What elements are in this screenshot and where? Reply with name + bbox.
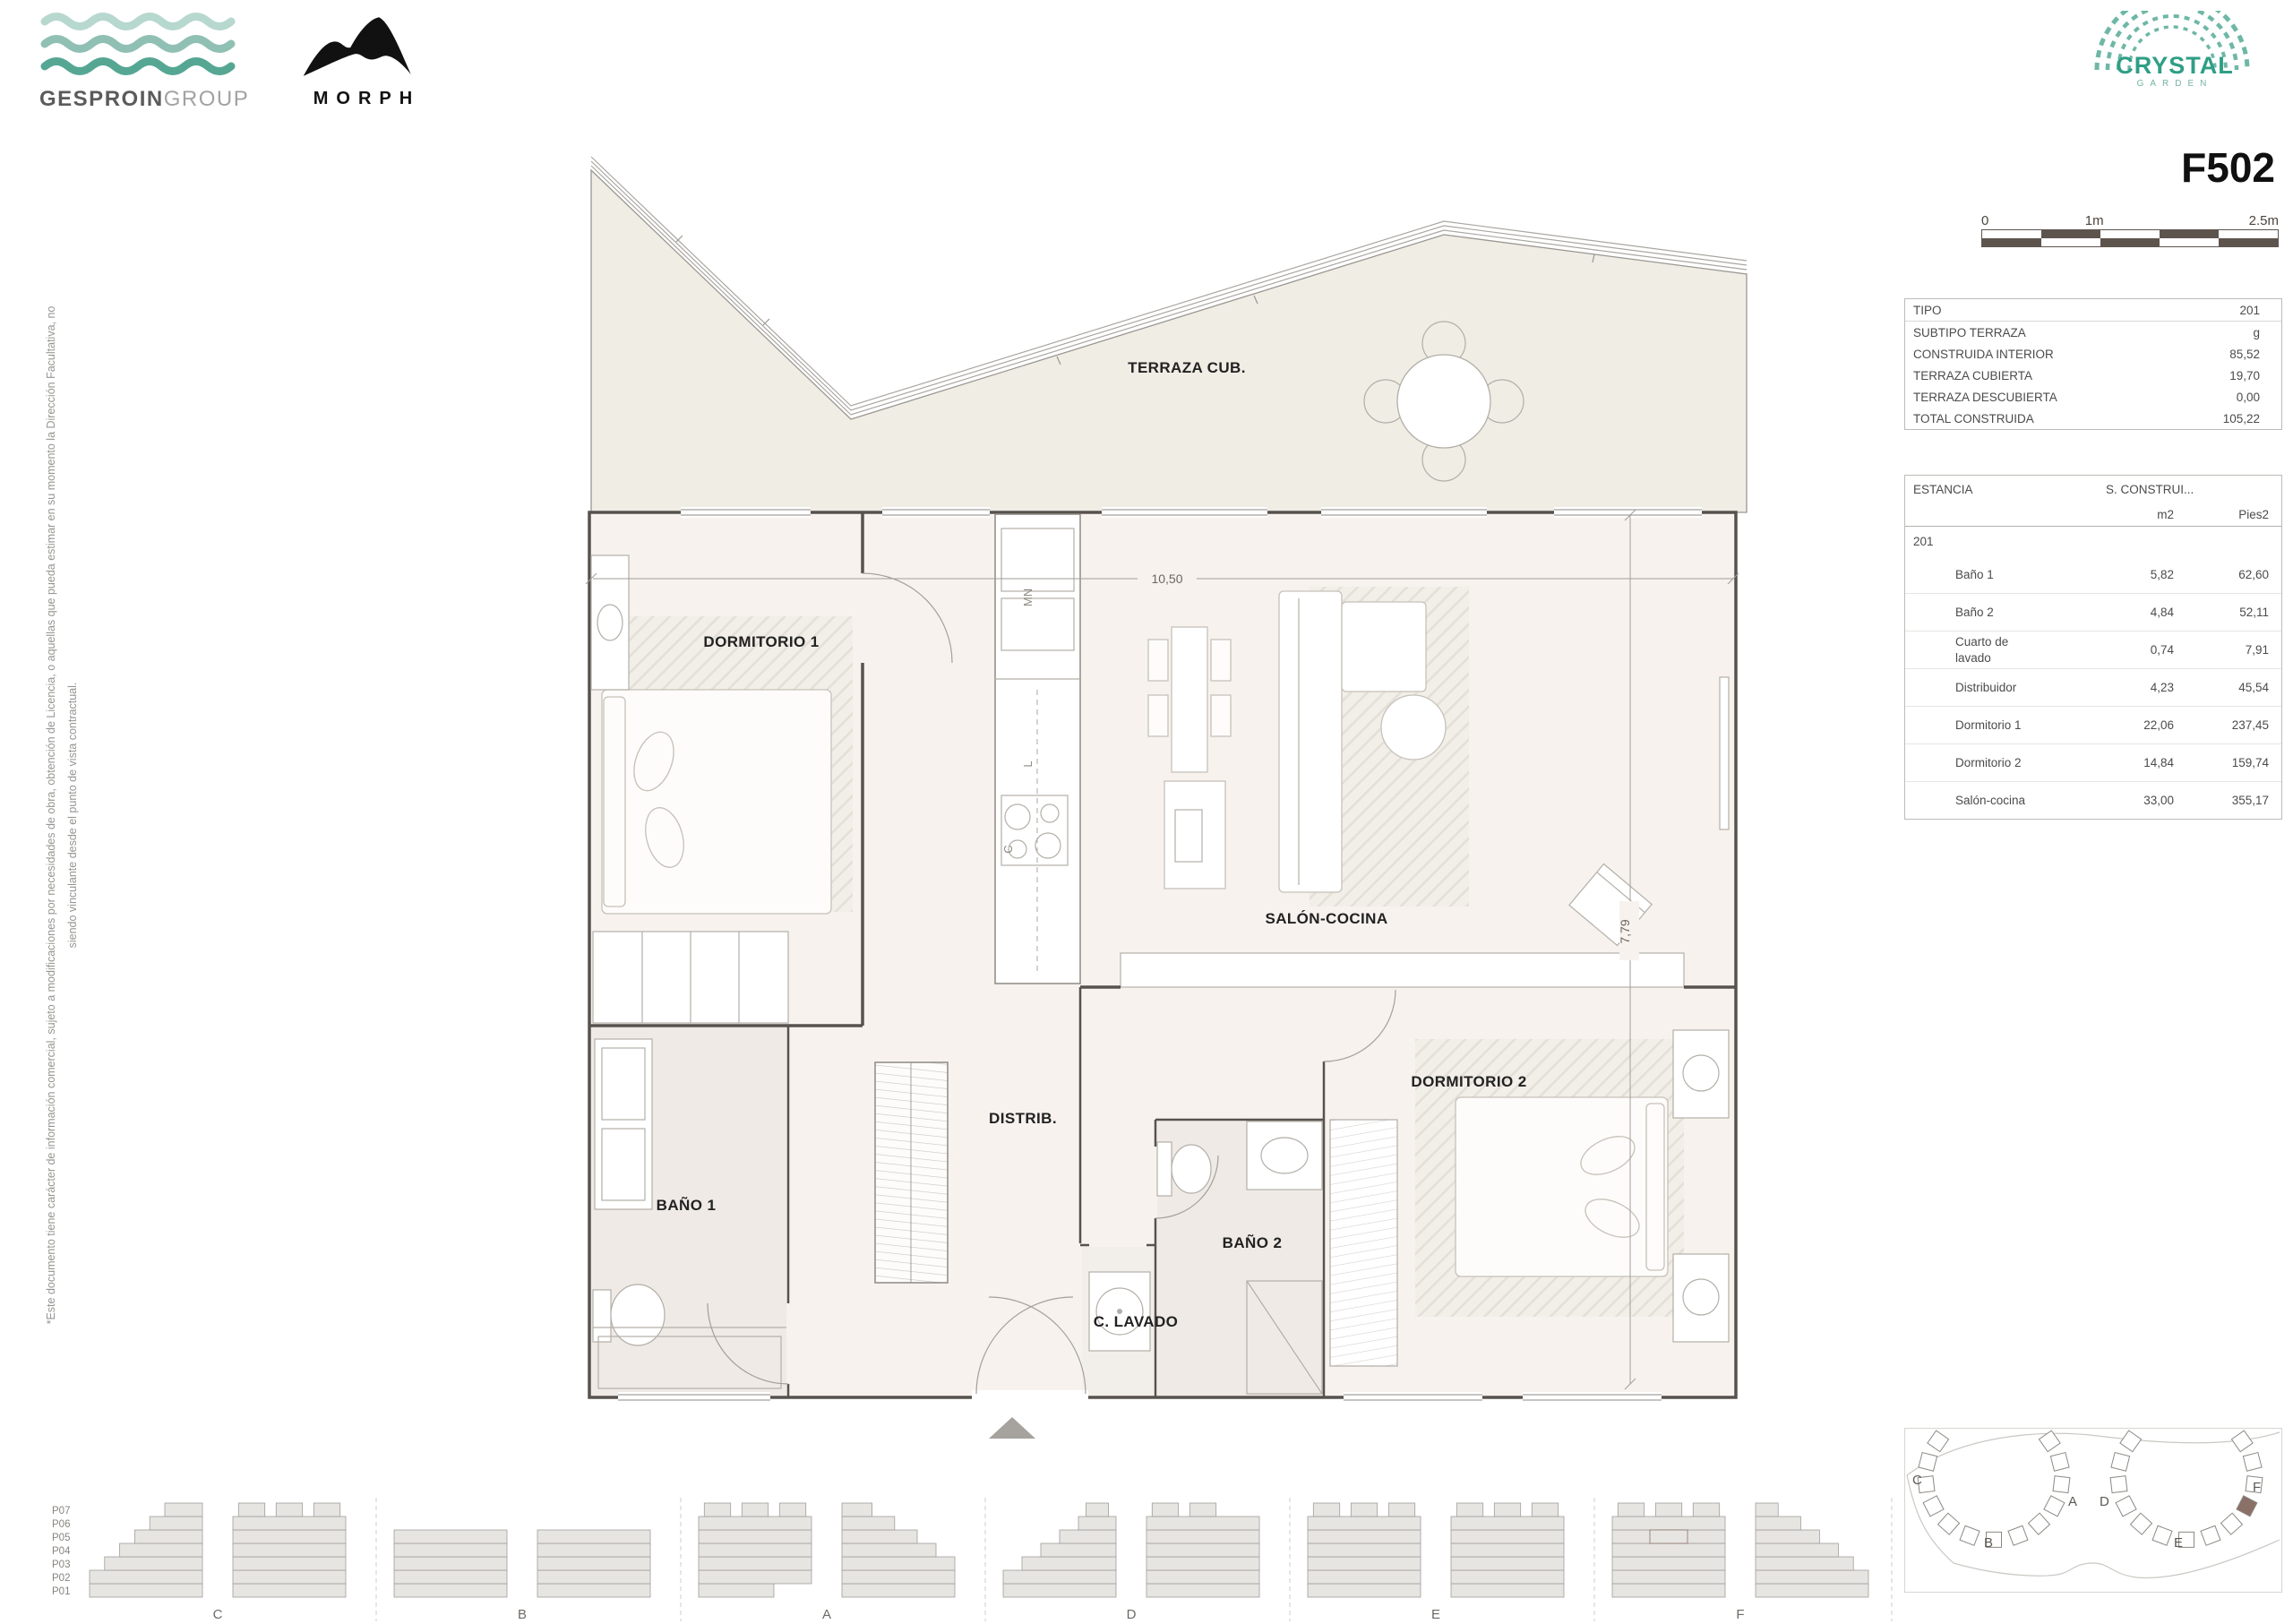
scale-bar: 0 1m 2.5m <box>1981 213 2279 249</box>
unit-cell <box>1756 1543 1838 1557</box>
unit-cell <box>842 1503 872 1517</box>
highlighted-unit-cell <box>1650 1530 1688 1543</box>
unit-code: F502 <box>2006 143 2275 192</box>
label-bano-2: BAÑO 2 <box>1223 1233 1283 1251</box>
site-unit <box>1960 1525 1980 1545</box>
unit-cell <box>1308 1543 1421 1557</box>
unit-cell <box>537 1584 650 1597</box>
dimension-width: 10,50 <box>1151 571 1182 586</box>
site-unit <box>2231 1431 2253 1452</box>
floor-plan: MN L C <box>573 150 1756 1458</box>
unit-cell <box>120 1543 202 1557</box>
unit-cell <box>842 1570 955 1584</box>
unit-cell <box>394 1570 507 1584</box>
unit-cell <box>1308 1530 1421 1543</box>
site-unit <box>2243 1453 2262 1472</box>
gesproin-waves-icon <box>39 11 247 77</box>
label-salon-cocina: SALÓN-COCINA <box>1265 910 1387 927</box>
kitchen-counter: MN L C <box>995 514 1080 984</box>
site-unit <box>2152 1525 2172 1545</box>
unit-cell <box>233 1570 346 1584</box>
unit-cell <box>233 1530 346 1543</box>
unit-cell <box>1022 1557 1116 1570</box>
unit-cell <box>1612 1517 1725 1530</box>
site-unit <box>2201 1525 2220 1545</box>
scale-tick-2-5m: 2.5m <box>2249 213 2279 228</box>
unit-cell <box>699 1543 812 1557</box>
unit-cell <box>779 1503 805 1517</box>
dorm1-bed <box>602 690 831 914</box>
unit-cell <box>1146 1570 1259 1584</box>
unit-cell <box>1388 1503 1414 1517</box>
morph-wordmark: MORPH <box>288 89 445 109</box>
unit-cell <box>842 1530 917 1543</box>
coffee-table <box>1381 695 1446 760</box>
floor-label: P01 <box>52 1586 70 1597</box>
floor-label: P06 <box>52 1519 70 1530</box>
unit-cell <box>699 1530 812 1543</box>
site-block-letter: A <box>2068 1494 2077 1509</box>
crystal-wordmark: CRYSTAL <box>2089 52 2261 80</box>
table-row: TERRAZA DESCUBIERTA0,00 <box>1905 386 2281 408</box>
site-unit <box>2131 1513 2152 1534</box>
label-dormitorio-2: DORMITORIO 2 <box>1411 1073 1526 1090</box>
appliance-label-l: L <box>1021 760 1035 767</box>
block-letter: E <box>1431 1607 1440 1622</box>
unit-cell <box>1308 1584 1421 1597</box>
table-row: CONSTRUIDA INTERIOR85,52 <box>1905 343 2281 365</box>
unit-cell <box>1078 1517 1116 1530</box>
table-row: Cuarto de lavado0,747,91 <box>1905 631 2281 668</box>
unit-cell <box>1655 1503 1681 1517</box>
unit-cell <box>1756 1584 1868 1597</box>
unit-cell <box>537 1557 650 1570</box>
label-distribuidor: DISTRIB. <box>989 1110 1057 1127</box>
unit-cell <box>1456 1503 1482 1517</box>
building-elevations: P07P06P05P04P03P02P01CBADEF <box>36 1494 1917 1624</box>
unit-cell <box>1313 1503 1339 1517</box>
rooms-table: ESTANCIA S. CONSTRUI... m2 Pies2 201 Bañ… <box>1904 475 2282 820</box>
unit-cell <box>90 1584 202 1597</box>
unit-cell <box>1693 1503 1719 1517</box>
block-letter: D <box>1127 1607 1137 1622</box>
unit-cell <box>1612 1584 1725 1597</box>
disclaimer-text: *Este documento tiene carácter de inform… <box>41 175 84 1456</box>
block-letter: B <box>518 1607 527 1622</box>
unit-cell <box>394 1530 507 1543</box>
table-row: Distribuidor4,2345,54 <box>1905 668 2281 706</box>
scale-tick-0: 0 <box>1981 213 1988 228</box>
page: { "header": { "gesproin_bold": "GESPROIN… <box>0 0 2293 1621</box>
block-letter: C <box>213 1607 223 1622</box>
unit-cell <box>1532 1503 1558 1517</box>
unit-cell <box>842 1584 955 1597</box>
unit-cell <box>842 1543 936 1557</box>
table-row: SUBTIPO TERRAZAg <box>1905 322 2281 343</box>
site-unit <box>1928 1431 1949 1452</box>
sideboard <box>1121 953 1684 987</box>
site-unit <box>2111 1453 2130 1472</box>
label-c-lavado: C. LAVADO <box>1094 1313 1179 1330</box>
unit-cell <box>1308 1557 1421 1570</box>
site-unit <box>2050 1453 2069 1472</box>
unit-cell <box>150 1517 202 1530</box>
site-unit <box>1938 1513 1960 1534</box>
crystal-garden-logo: CRYSTAL GARDEN <box>2089 11 2261 98</box>
site-unit <box>1923 1496 1944 1517</box>
table-row: Dormitorio 122,06237,45 <box>1905 706 2281 743</box>
table-row: Baño 15,8262,60 <box>1905 556 2281 593</box>
stair-core <box>875 1062 948 1283</box>
unit-cell <box>1146 1543 1259 1557</box>
terrace <box>591 157 1747 512</box>
site-block-letter: C <box>1912 1473 1922 1488</box>
site-unit <box>2120 1431 2142 1452</box>
site-unit <box>2028 1513 2049 1534</box>
unit-cell <box>1451 1570 1564 1584</box>
washer <box>1089 1272 1150 1351</box>
table-row: Baño 24,8452,11 <box>1905 593 2281 631</box>
unit-cell <box>1756 1530 1819 1543</box>
rooms-table-group: 201 <box>1905 527 2281 556</box>
floor-label: P04 <box>52 1546 71 1557</box>
wall-column <box>591 555 629 690</box>
unit-cell <box>1756 1570 1868 1584</box>
unit-cell <box>537 1530 650 1543</box>
floor-label: P03 <box>52 1560 70 1570</box>
unit-cell <box>742 1503 768 1517</box>
rooms-table-header: ESTANCIA S. CONSTRUI... <box>1905 476 2281 503</box>
site-unit <box>2053 1476 2070 1493</box>
table-row: TERRAZA CUBIERTA19,70 <box>1905 365 2281 386</box>
unit-cell <box>1451 1557 1564 1570</box>
appliance-label-mn: MN <box>1021 589 1035 606</box>
site-block-letter: F <box>2253 1480 2261 1495</box>
unit-cell <box>1146 1584 1259 1597</box>
unit-cell <box>1756 1503 1778 1517</box>
unit-cell <box>233 1517 346 1530</box>
unit-cell <box>1060 1530 1116 1543</box>
floor-label: P02 <box>52 1573 70 1584</box>
site-highlighted-unit <box>2237 1496 2257 1517</box>
table-row: Dormitorio 214,84159,74 <box>1905 743 2281 781</box>
block-letter: F <box>1736 1607 1744 1622</box>
unit-cell <box>1189 1503 1215 1517</box>
site-block-letter: D <box>2100 1494 2109 1509</box>
unit-cell <box>699 1584 774 1597</box>
unit-cell <box>134 1530 202 1543</box>
block-letter: A <box>822 1607 831 1622</box>
dimension-height: 7,79 <box>1618 919 1632 943</box>
unit-cell <box>1451 1584 1564 1597</box>
table-row: Salón-cocina33,00355,17 <box>1905 781 2281 819</box>
unit-cell <box>1612 1543 1725 1557</box>
unit-cell <box>537 1543 650 1557</box>
gesproin-logo: GESPROINGROUP <box>39 11 263 112</box>
unit-cell <box>313 1503 339 1517</box>
dorm2-wardrobe <box>1330 1120 1397 1366</box>
unit-cell <box>842 1517 895 1530</box>
unit-cell <box>90 1570 202 1584</box>
unit-cell <box>1756 1557 1853 1570</box>
rooms-table-units: m2 Pies2 <box>1905 503 2281 527</box>
unit-cell <box>233 1557 346 1570</box>
floor-label: P05 <box>52 1533 70 1543</box>
unit-cell <box>1612 1570 1725 1584</box>
unit-cell <box>1152 1503 1178 1517</box>
unit-cell <box>699 1557 812 1570</box>
unit-cell <box>165 1503 202 1517</box>
table-row: TIPO201 <box>1905 299 2281 322</box>
dorm2-bed <box>1456 1097 1668 1276</box>
summary-table: TIPO201 SUBTIPO TERRAZAg CONSTRUIDA INTE… <box>1904 298 2282 430</box>
label-dormitorio-1: DORMITORIO 1 <box>703 633 819 650</box>
site-unit <box>2044 1496 2065 1517</box>
label-terraza: TERRAZA CUB. <box>1128 359 1246 376</box>
unit-cell <box>1003 1570 1116 1584</box>
unit-cell <box>1308 1517 1421 1530</box>
entrance-arrow-icon <box>989 1417 1035 1439</box>
site-block-letter: E <box>2174 1535 2183 1551</box>
unit-cell <box>238 1503 264 1517</box>
unit-cell <box>1451 1543 1564 1557</box>
gesproin-wordmark: GESPROINGROUP <box>39 87 263 112</box>
kitchen-island <box>1164 781 1225 889</box>
unit-cell <box>1756 1517 1800 1530</box>
unit-cell <box>1494 1503 1520 1517</box>
site-unit <box>2008 1525 2028 1545</box>
morph-logo: MORPH <box>288 13 445 109</box>
unit-cell <box>233 1584 346 1597</box>
unit-cell <box>1451 1530 1564 1543</box>
unit-cell <box>276 1503 302 1517</box>
morph-mountain-icon <box>300 13 434 82</box>
unit-cell <box>394 1584 507 1597</box>
unit-cell <box>1146 1557 1259 1570</box>
unit-cell <box>394 1543 507 1557</box>
label-bano-1: BAÑO 1 <box>657 1196 717 1214</box>
unit-cell <box>1451 1517 1564 1530</box>
table-row: TOTAL CONSTRUIDA105,22 <box>1905 408 2281 429</box>
unit-cell <box>1146 1517 1259 1530</box>
unit-cell <box>699 1570 812 1584</box>
unit-cell <box>394 1557 507 1570</box>
floor-label: P07 <box>52 1506 70 1517</box>
site-block-letter: B <box>1984 1535 1993 1551</box>
scale-tick-1m: 1m <box>2085 213 2104 228</box>
unit-cell <box>704 1503 730 1517</box>
unit-cell <box>1618 1503 1644 1517</box>
site-unit <box>2110 1476 2127 1493</box>
unit-cell <box>1086 1503 1108 1517</box>
garden-wordmark: GARDEN <box>2089 79 2261 89</box>
unit-cell <box>537 1570 650 1584</box>
site-unit <box>1919 1453 1937 1472</box>
wall-shelf <box>1720 677 1729 829</box>
unit-cell <box>1612 1557 1725 1570</box>
unit-cell <box>233 1543 346 1557</box>
site-map: CBADEF <box>1904 1428 2282 1593</box>
unit-cell <box>1003 1584 1116 1597</box>
site-unit <box>2220 1513 2242 1534</box>
unit-cell <box>842 1557 955 1570</box>
site-unit <box>2116 1496 2136 1517</box>
unit-cell <box>1308 1570 1421 1584</box>
appliance-label-c: C <box>1001 845 1015 853</box>
unit-cell <box>1041 1543 1116 1557</box>
unit-cell <box>1351 1503 1377 1517</box>
scale-bar-graphic <box>1981 229 2279 247</box>
unit-cell <box>1146 1530 1259 1543</box>
unit-cell <box>699 1517 812 1530</box>
unit-cell <box>105 1557 202 1570</box>
